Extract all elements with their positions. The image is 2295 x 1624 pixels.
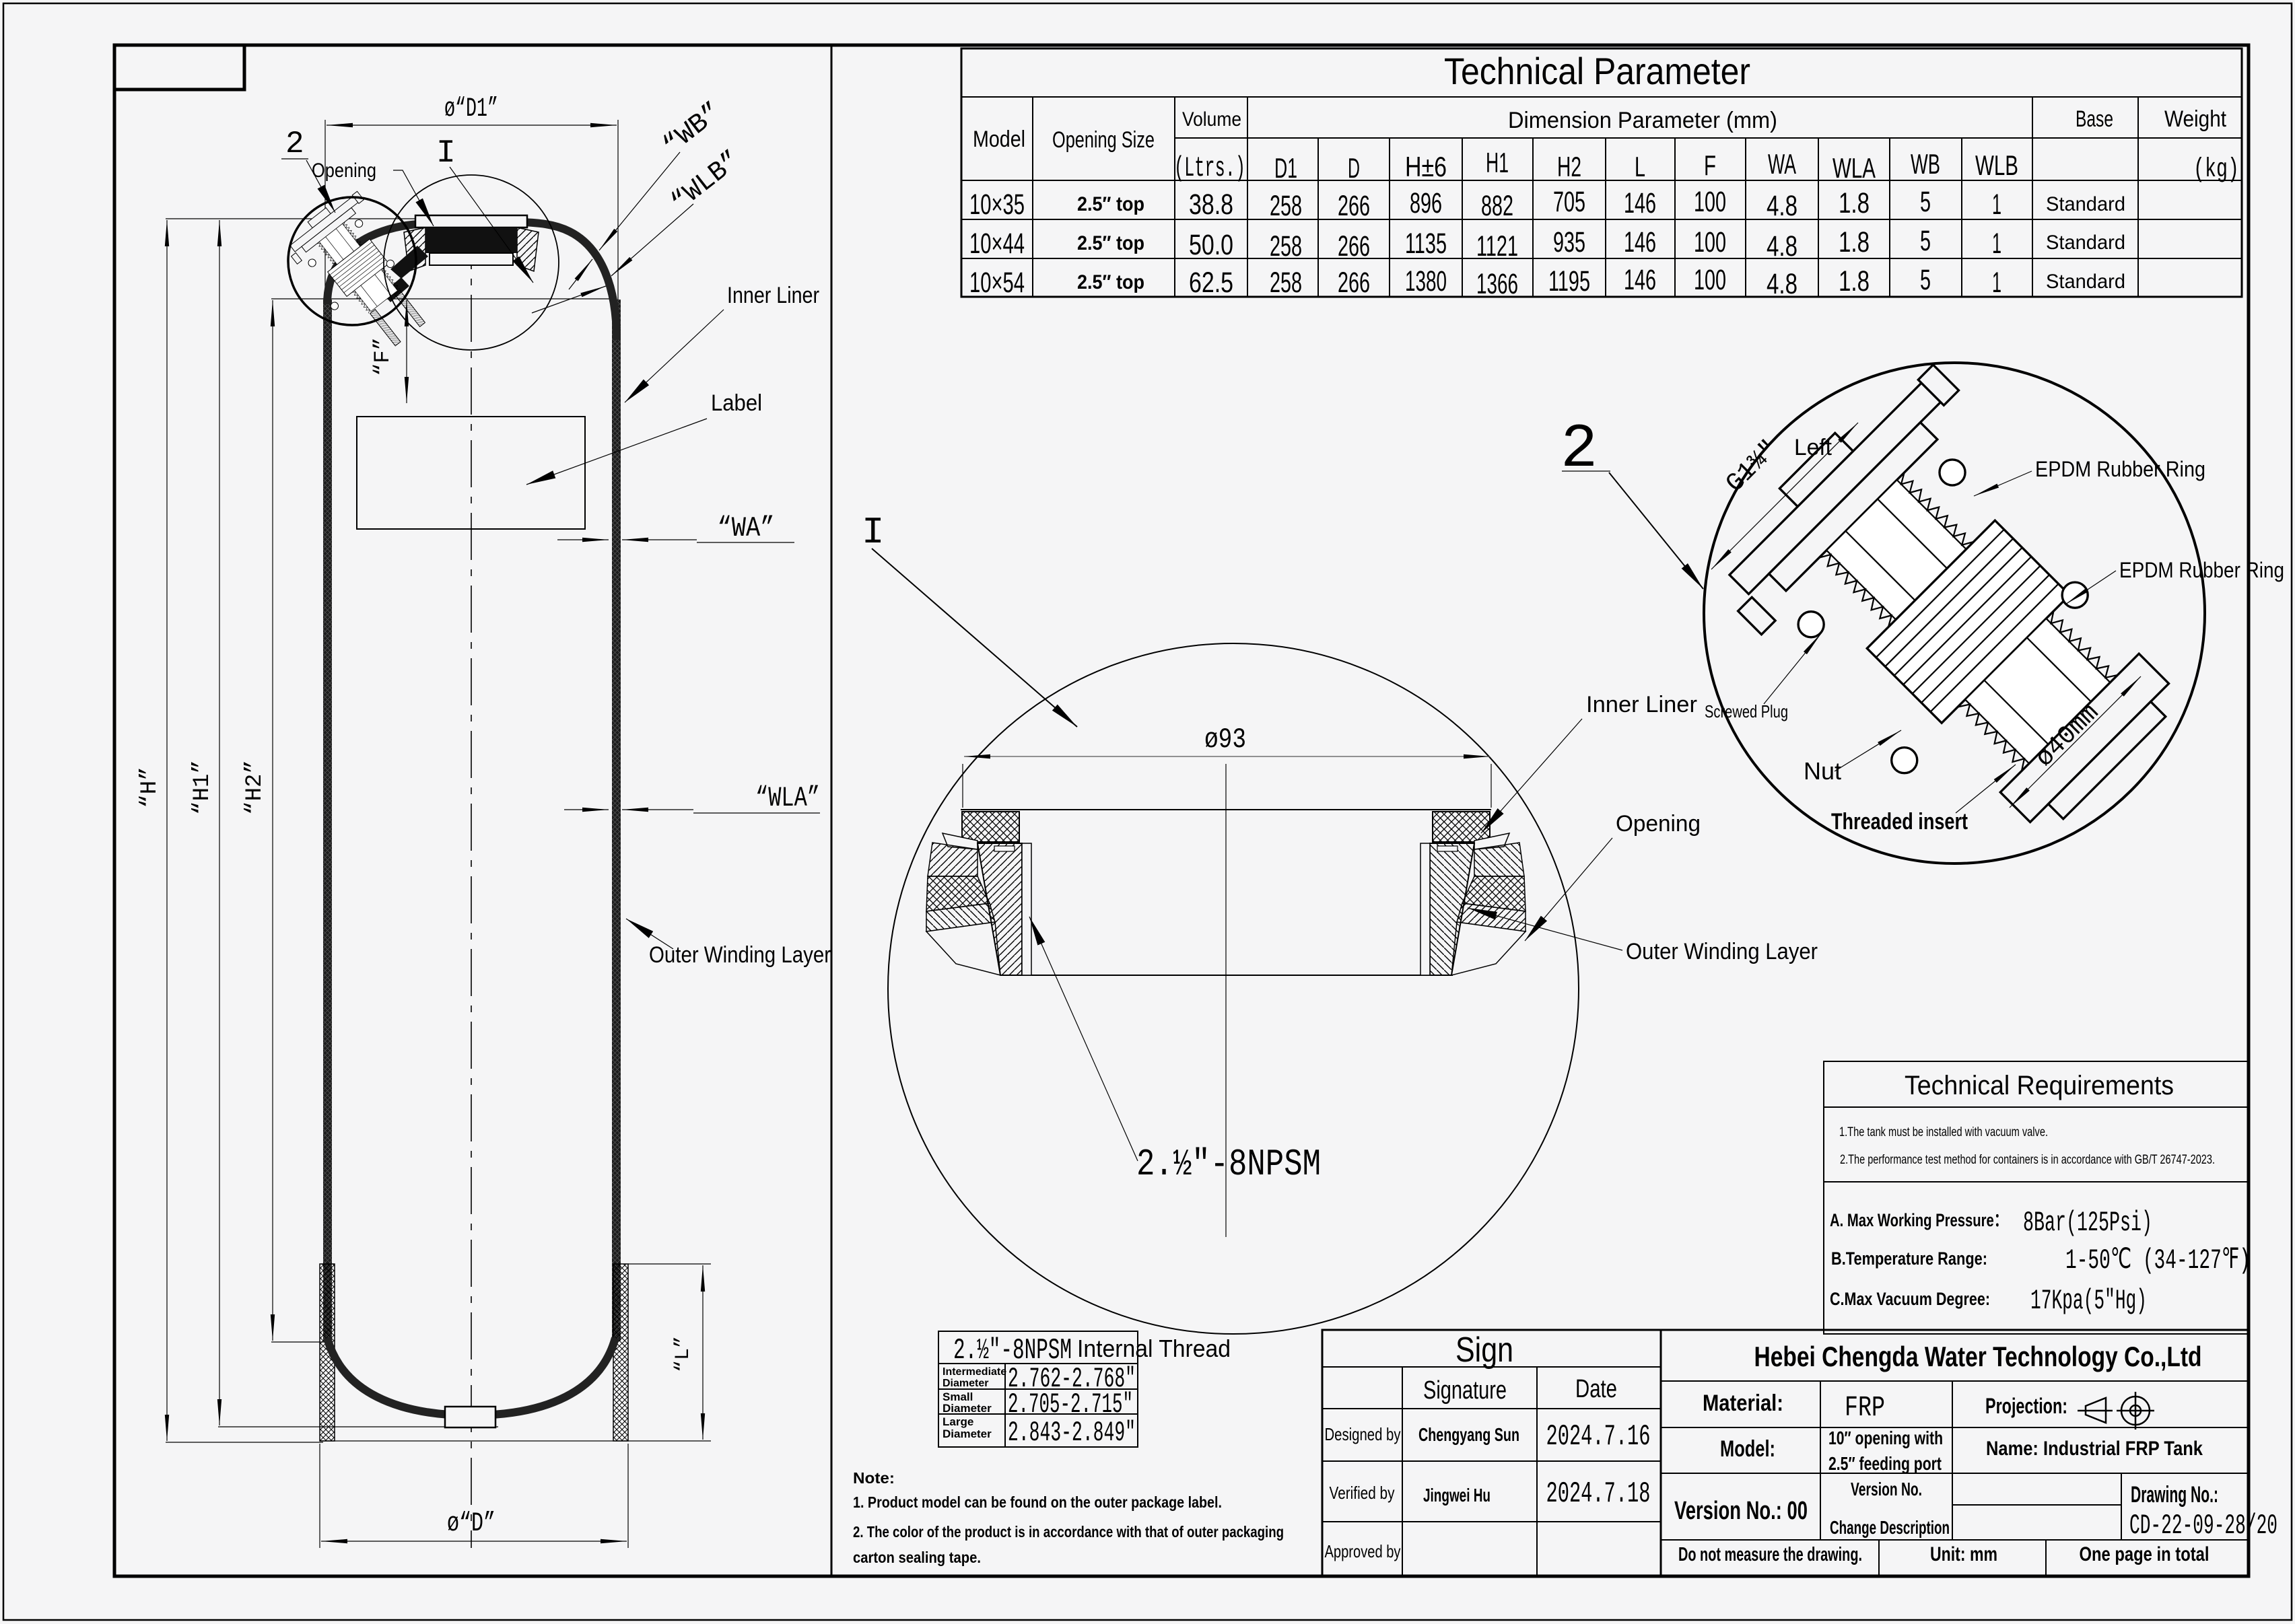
svg-text:Outer Winding Layer: Outer Winding Layer (1626, 939, 1818, 964)
svg-text:Chengyang Sun: Chengyang Sun (1418, 1424, 1519, 1445)
svg-text:62.5: 62.5 (1189, 267, 1233, 299)
svg-text:I: I (436, 135, 456, 172)
svg-text:266: 266 (1338, 230, 1370, 262)
svg-text:258: 258 (1270, 230, 1302, 262)
svg-text:D: D (1348, 152, 1360, 184)
svg-text:1.8: 1.8 (1839, 187, 1870, 219)
svg-text:Model: Model (973, 127, 1025, 152)
svg-text:10×44: 10×44 (969, 227, 1025, 260)
svg-text:Sign: Sign (1455, 1331, 1513, 1370)
svg-text:4.8: 4.8 (1767, 230, 1797, 262)
svg-text:266: 266 (1338, 190, 1370, 222)
svg-text:8Bar(125Psi): 8Bar(125Psi) (2023, 1207, 2152, 1239)
svg-text:10×54: 10×54 (969, 267, 1025, 299)
svg-text:100: 100 (1694, 226, 1726, 258)
svg-text:1.The tank must be installed w: 1.The tank must be installed with vacuum… (1839, 1125, 2048, 1139)
svg-text:146: 146 (1624, 187, 1656, 219)
svg-text:Standard: Standard (2046, 271, 2125, 293)
svg-text:F: F (1704, 149, 1716, 181)
svg-text:1.8: 1.8 (1839, 265, 1870, 297)
svg-text:“F”: “F” (370, 337, 395, 376)
svg-text:Technical Parameter: Technical Parameter (1444, 50, 1750, 92)
svg-text:Intermediate: Intermediate (943, 1366, 1006, 1378)
svg-text:Material:: Material: (1703, 1390, 1783, 1416)
svg-text:Signature: Signature (1423, 1376, 1507, 1405)
svg-text:Weight: Weight (2164, 106, 2226, 132)
svg-text:5: 5 (1920, 264, 1931, 296)
svg-text:Inner Liner: Inner Liner (1586, 692, 1697, 717)
svg-text:“WLA”: “WLA” (755, 782, 820, 814)
svg-text:H2: H2 (1557, 151, 1581, 182)
svg-text:Screwed Plug: Screwed Plug (1705, 701, 1788, 721)
svg-text:10×35: 10×35 (969, 188, 1025, 221)
svg-text:Projection:: Projection: (1985, 1394, 2067, 1418)
svg-text:EPDM Rubber Ring: EPDM Rubber Ring (2119, 558, 2284, 582)
svg-text:Designed by: Designed by (1325, 1424, 1401, 1444)
svg-text:Approved by: Approved by (1325, 1541, 1401, 1561)
svg-text:100: 100 (1694, 186, 1726, 218)
svg-text:2.843-2.849″: 2.843-2.849″ (1008, 1417, 1136, 1449)
svg-text:H±6: H±6 (1405, 151, 1447, 182)
svg-text:2.5″ top: 2.5″ top (1077, 193, 1144, 215)
svg-text:Do not measure the drawing.: Do not measure the drawing. (1678, 1544, 1862, 1565)
svg-text:Version No.: Version No. (1851, 1479, 1922, 1499)
svg-text:Technical Requirements: Technical Requirements (1905, 1071, 2174, 1100)
svg-text:100: 100 (1694, 264, 1726, 296)
svg-text:146: 146 (1624, 226, 1656, 258)
svg-text:Internal Thread: Internal Thread (1077, 1335, 1231, 1362)
svg-text:2: 2 (285, 127, 304, 162)
svg-text:“H1”: “H1” (190, 760, 215, 815)
svg-text:Large: Large (943, 1415, 973, 1428)
svg-text:ø“D”: ø“D” (447, 1509, 495, 1539)
svg-text:Hebei Chengda Water Technology: Hebei Chengda Water Technology Co.,Ltd (1754, 1341, 2202, 1372)
svg-text:266: 266 (1338, 267, 1370, 299)
svg-text:1: 1 (1992, 227, 2001, 260)
svg-text:Base: Base (2076, 106, 2113, 132)
svg-text:Left: Left (1794, 435, 1832, 460)
svg-text:Standard: Standard (2046, 232, 2125, 254)
svg-text:L: L (1635, 151, 1645, 182)
svg-text:Diameter: Diameter (943, 1378, 988, 1389)
svg-text:Note:: Note: (853, 1469, 895, 1487)
svg-text:Opening: Opening (1616, 811, 1701, 837)
svg-text:Inner Liner: Inner Liner (727, 283, 819, 308)
svg-text:Standard: Standard (2046, 193, 2125, 215)
svg-text:WB: WB (1911, 148, 1940, 180)
svg-text:1380: 1380 (1405, 265, 1447, 297)
svg-text:17Kpa(5″Hg): 17Kpa(5″Hg) (2030, 1285, 2147, 1317)
svg-text:“H2”: “H2” (242, 760, 268, 815)
svg-text:1: 1 (1992, 267, 2001, 299)
svg-text:Verified by: Verified by (1330, 1483, 1395, 1503)
svg-text:2.½″-8NPSM: 2.½″-8NPSM (1136, 1143, 1321, 1186)
svg-text:1.8: 1.8 (1839, 226, 1870, 258)
svg-text:(kg): (kg) (2193, 155, 2239, 185)
svg-text:“L”: “L” (672, 1336, 695, 1372)
svg-text:I: I (862, 511, 885, 554)
svg-text:Jingwei Hu: Jingwei Hu (1423, 1485, 1491, 1506)
svg-text:Unit: mm: Unit: mm (1930, 1543, 1997, 1565)
svg-text:882: 882 (1481, 190, 1513, 222)
svg-text:258: 258 (1270, 190, 1302, 222)
svg-text:ø“D1”: ø“D1” (444, 94, 498, 125)
svg-text:1. Product model can be found: 1. Product model can be found on the out… (853, 1493, 1222, 1511)
svg-text:Threaded insert: Threaded insert (1831, 809, 1968, 835)
svg-text:D1: D1 (1274, 152, 1297, 184)
svg-text:FRP: FRP (1845, 1391, 1885, 1424)
svg-text:Outer Winding Layer: Outer Winding Layer (649, 942, 831, 968)
svg-text:One page in total: One page in total (2080, 1543, 2210, 1565)
svg-text:Volume: Volume (1182, 108, 1241, 131)
svg-text:896: 896 (1410, 187, 1442, 219)
svg-text:935: 935 (1553, 226, 1585, 258)
svg-text:carton sealing tape.: carton sealing tape. (853, 1549, 981, 1566)
svg-text:1121: 1121 (1476, 230, 1518, 262)
svg-text:ø93: ø93 (1204, 723, 1246, 756)
svg-text:2.705-2.715″: 2.705-2.715″ (1008, 1388, 1133, 1421)
svg-text:Name: Industrial FRP Tank: Name: Industrial FRP Tank (1986, 1438, 2203, 1460)
svg-text:10″ opening with: 10″ opening with (1828, 1427, 1943, 1448)
svg-text:Model:: Model: (1720, 1436, 1775, 1462)
svg-text:EPDM Rubber Ring: EPDM Rubber Ring (2035, 457, 2205, 481)
svg-text:2. The color of the product is: 2. The color of the product is in accord… (853, 1523, 1284, 1541)
svg-text:2024.7.16: 2024.7.16 (1546, 1420, 1651, 1454)
svg-text:B.Temperature Range:: B.Temperature Range: (1831, 1248, 1987, 1269)
svg-text:705: 705 (1553, 186, 1585, 218)
svg-text:1366: 1366 (1476, 268, 1518, 300)
svg-text:1: 1 (1992, 188, 2001, 221)
svg-text:2: 2 (1561, 414, 1598, 485)
svg-text:(Ltrs.): (Ltrs.) (1174, 152, 1245, 184)
svg-text:A. Max Working Pressure：: A. Max Working Pressure： (1830, 1210, 2008, 1230)
svg-text:Version No.: 00: Version No.: 00 (1674, 1497, 1808, 1525)
svg-text:2.5″ feeding port: 2.5″ feeding port (1828, 1453, 1942, 1474)
svg-text:Diameter: Diameter (943, 1427, 992, 1440)
svg-text:Opening Size: Opening Size (1052, 127, 1155, 153)
svg-text:258: 258 (1270, 267, 1302, 299)
svg-text:Dimension Parameter (mm): Dimension Parameter (mm) (1508, 108, 1777, 133)
svg-text:5: 5 (1920, 225, 1931, 257)
svg-text:2024.7.18: 2024.7.18 (1546, 1477, 1651, 1511)
svg-text:Change Description: Change Description (1830, 1517, 1950, 1538)
svg-text:4.8: 4.8 (1767, 268, 1797, 300)
svg-text:1135: 1135 (1405, 227, 1447, 260)
svg-text:146: 146 (1624, 264, 1656, 296)
svg-text:WLA: WLA (1832, 152, 1876, 184)
svg-text:WLB: WLB (1975, 149, 2018, 181)
svg-text:50.0: 50.0 (1189, 229, 1233, 261)
svg-text:2.The performance test method: 2.The performance test method for contai… (1840, 1153, 2215, 1167)
svg-text:CD-22-09-28/20: CD-22-09-28/20 (2129, 1510, 2277, 1542)
svg-text:Opening: Opening (312, 160, 376, 182)
svg-text:Diameter: Diameter (943, 1402, 992, 1415)
svg-text:4.8: 4.8 (1767, 190, 1797, 222)
svg-text:H1: H1 (1486, 147, 1509, 178)
svg-text:Date: Date (1575, 1375, 1617, 1403)
svg-text:Label: Label (711, 390, 762, 416)
svg-text:C.Max Vacuum Degree:: C.Max Vacuum Degree: (1830, 1289, 1990, 1309)
svg-text:2.5″ top: 2.5″ top (1077, 271, 1144, 293)
svg-text:1-50℃ (34-127℉): 1-50℃ (34-127℉) (2065, 1244, 2251, 1277)
svg-text:Drawing No.:: Drawing No.: (2131, 1482, 2218, 1508)
svg-text:“H”: “H” (137, 767, 163, 808)
svg-text:38.8: 38.8 (1189, 188, 1233, 221)
svg-text:1195: 1195 (1548, 265, 1590, 297)
svg-text:5: 5 (1920, 186, 1931, 218)
svg-text:2.5″ top: 2.5″ top (1077, 232, 1144, 254)
svg-text:WA: WA (1768, 148, 1796, 180)
svg-text:“WA”: “WA” (718, 512, 775, 544)
